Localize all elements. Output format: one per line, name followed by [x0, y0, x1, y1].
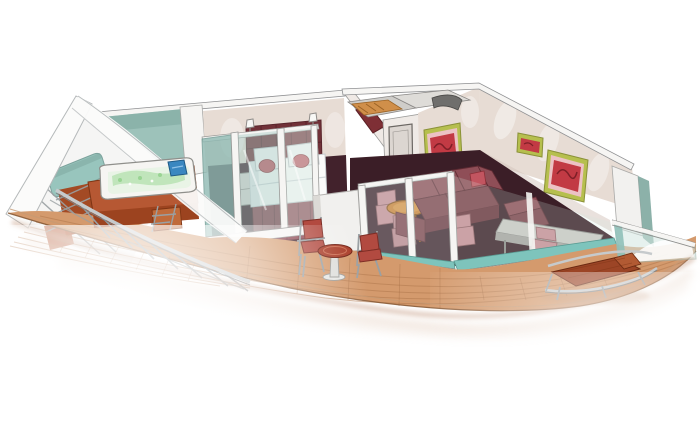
blue-towel	[168, 160, 187, 176]
suite-cutaway-stage	[0, 0, 700, 433]
whirlpool-tub	[100, 158, 197, 199]
bedroom-wall-wash2	[325, 112, 345, 148]
bedroom-glass-2	[238, 131, 281, 233]
suite-illustration	[0, 0, 700, 433]
fade-bottom-left	[0, 225, 380, 433]
living-glass-2	[412, 175, 451, 263]
fade-bottom-right	[430, 272, 700, 433]
